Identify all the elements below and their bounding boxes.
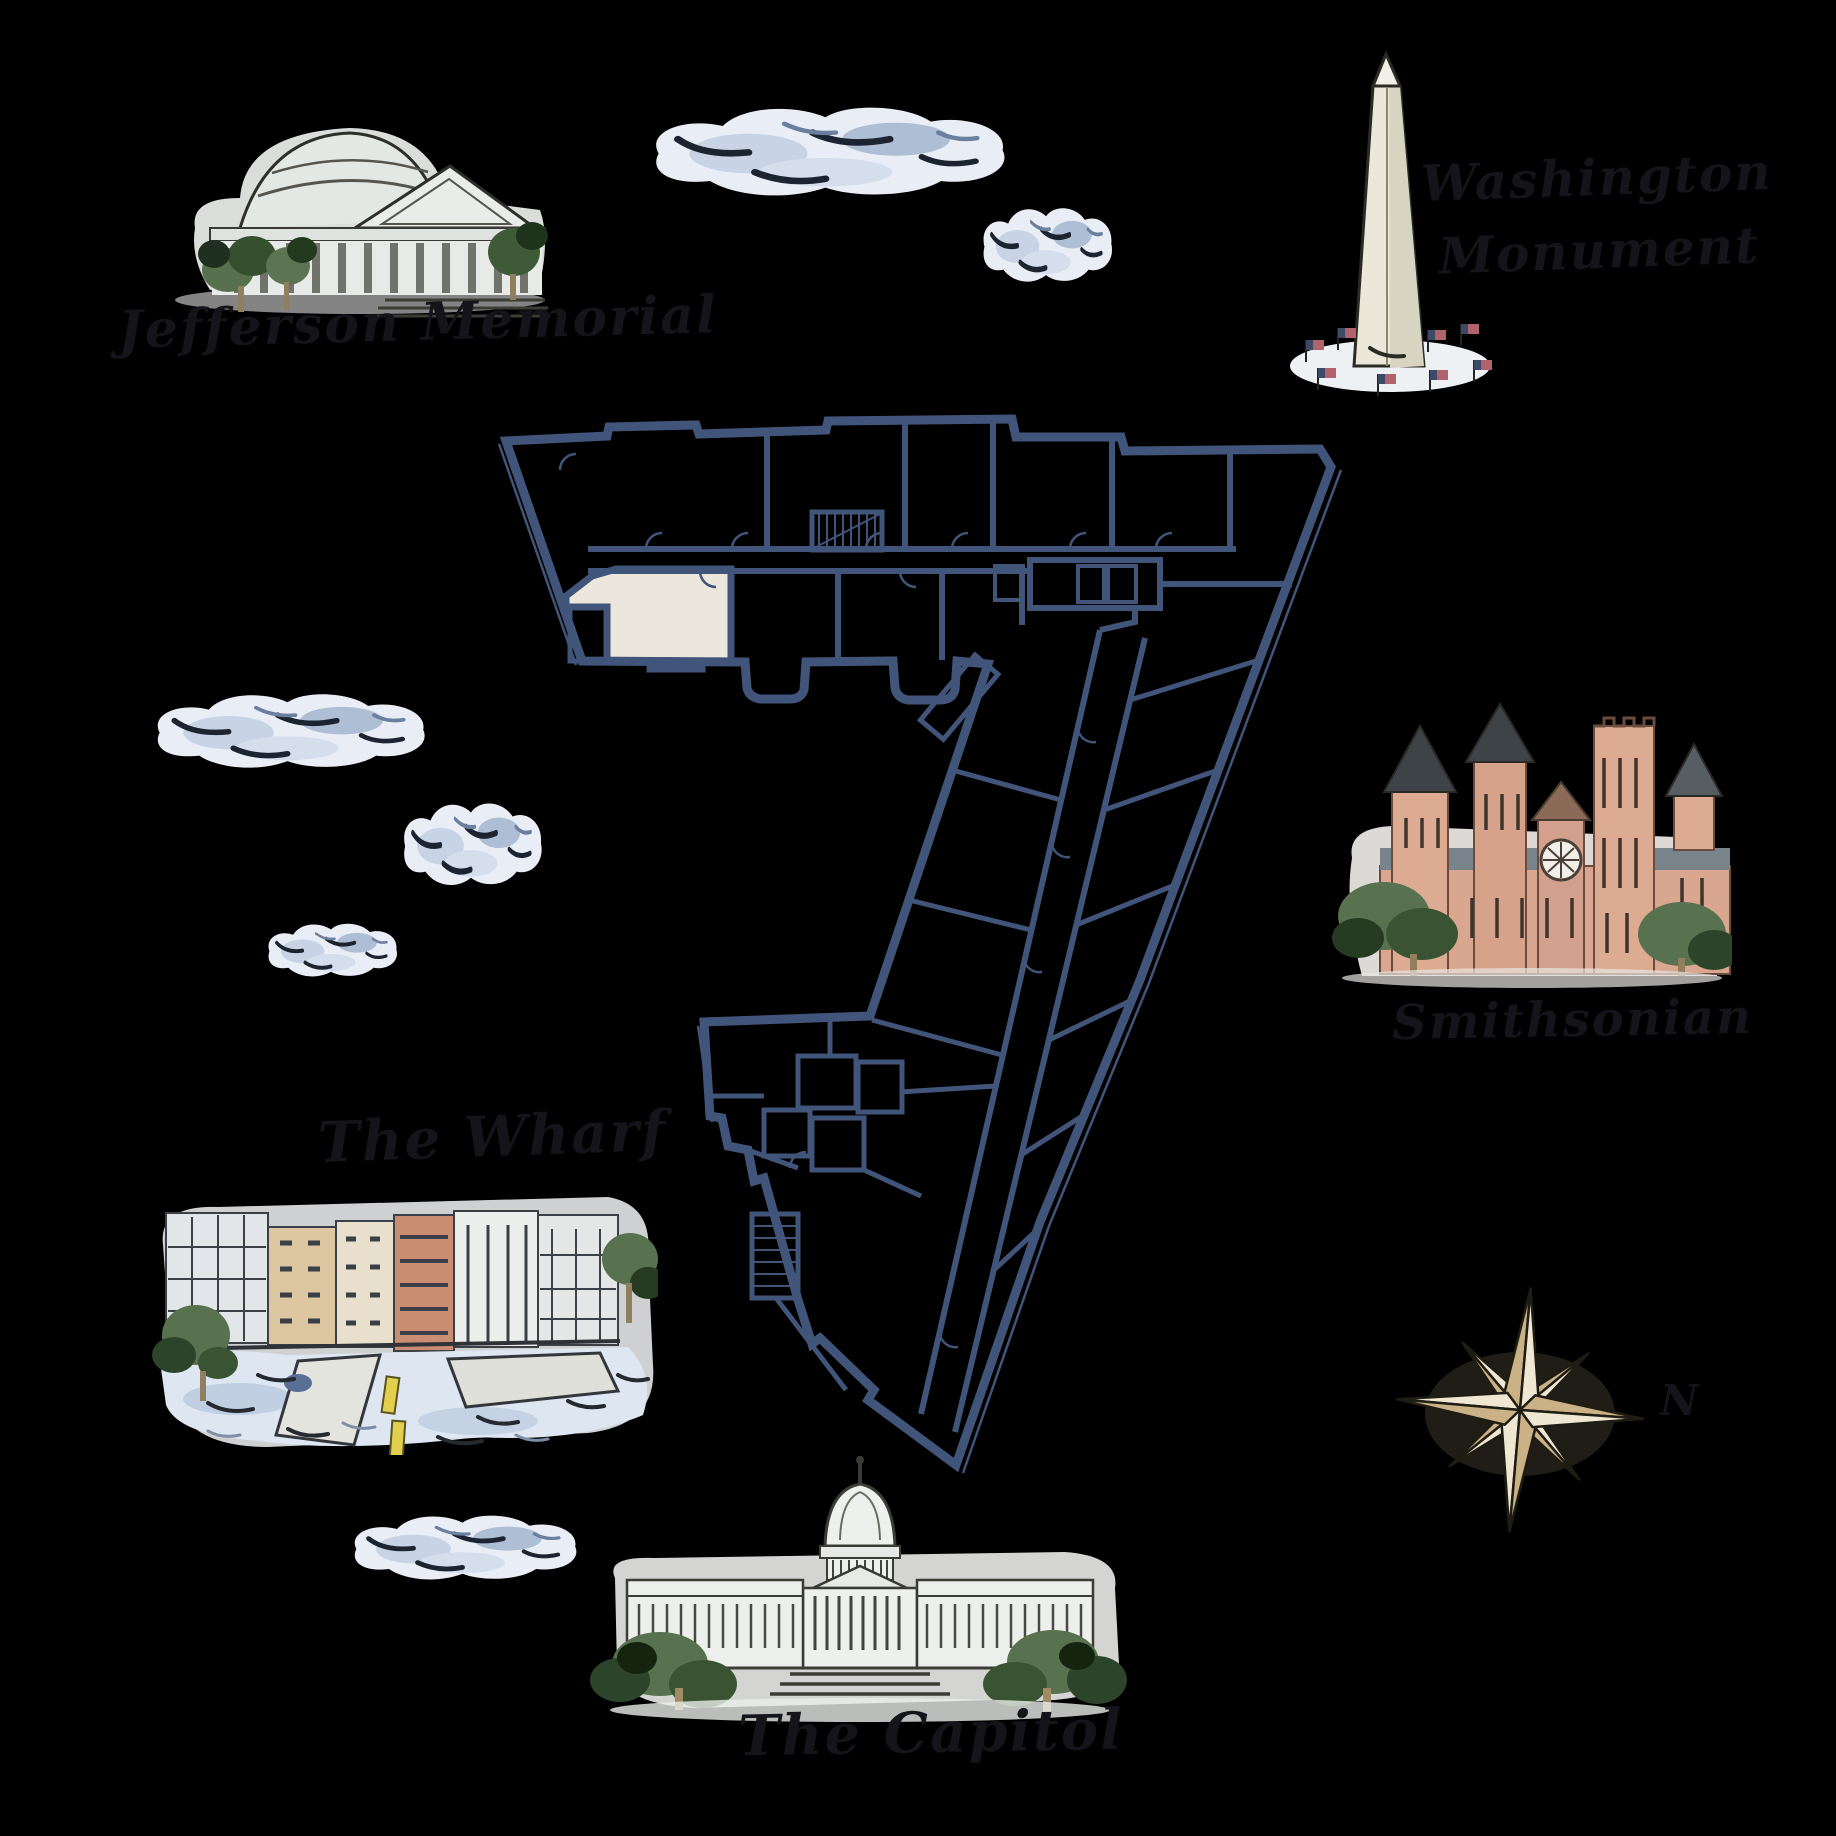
smithsonian-castle-illustration — [1322, 698, 1732, 988]
the-wharf-label: The Wharf — [317, 1098, 668, 1176]
cloud-icon — [340, 1505, 585, 1585]
compass-rose-icon — [1395, 1282, 1645, 1532]
washington-monument-label-line1: Washington — [1416, 136, 1778, 221]
compass-north-label: N — [1660, 1376, 1700, 1425]
cloud-icon — [140, 682, 435, 774]
illustrated-map-canvas: Jefferson Memorial Washington Monument — [0, 0, 1836, 1836]
us-capitol-illustration — [575, 1448, 1145, 1728]
the-capitol-label: The Capitol — [737, 1697, 1123, 1770]
washington-monument-label: Washington Monument — [1416, 136, 1781, 293]
buildings — [162, 1211, 620, 1351]
the-wharf-illustration — [148, 1185, 658, 1455]
smithsonian-label: Smithsonian — [1392, 989, 1754, 1051]
jefferson-memorial-illustration — [150, 78, 550, 318]
cloud-icon — [395, 790, 547, 892]
cloud-icon — [260, 915, 402, 981]
cloud-icon — [975, 196, 1117, 288]
washington-monument-label-line2: Monument — [1418, 208, 1780, 293]
cloud-icon — [633, 93, 1018, 203]
